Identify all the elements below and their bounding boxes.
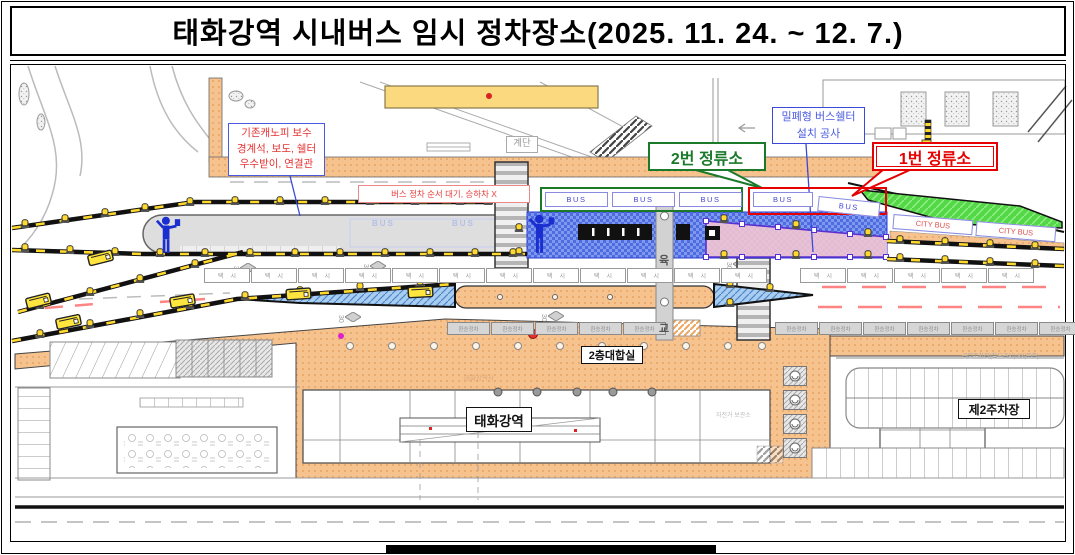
transfer-bay-row-right: 환승정차환승정차환승정차환승정차환승정차환승정차환승정차 [775,322,1075,335]
bus-bay-2: BUS [612,192,675,207]
public-parking-note: 공영주차장(철도공사) 83(북측) [962,351,1039,360]
taxi-bay-row-right: 택시택시택시택시택시 [800,268,1034,283]
canopy-note-line3: 우수받이, 연결관 [229,157,324,173]
striped-pole-icon [925,120,931,140]
transfer-bay: 환승정차 [863,322,906,335]
stop1-label: 1번 정류소 [899,145,971,169]
transfer-bay: 환승정차 [951,322,994,335]
bus-bay-1: BUS [545,192,608,207]
station-building-faint-label: 태화강역사 [464,372,494,382]
bottom-black-bar [386,545,716,553]
taxi-bay: 택시 [941,268,987,283]
stop1-bubble: 1번 정류소 [872,142,998,171]
svg-text:30: 30 [337,315,344,323]
transfer-bay: 환승정차 [1039,322,1075,335]
taxi-bay: 택시 [345,268,391,283]
station-name-label: 태화강역 [466,407,532,432]
title-underline [10,60,1066,61]
overpass-label: 육 교 [655,252,673,336]
bus-bay-4: BUS [753,192,813,207]
stop2-bubble: 2번 정류소 [648,142,766,171]
transfer-bay: 환승정차 [819,322,862,335]
page-title: 태화강역 시내버스 임시 정차장소(2025. 11. 24. ~ 12. 7.… [10,6,1066,56]
platform-bus-marking-1: BUS [372,219,395,228]
shelter-note-line2: 설치 공사 [773,126,864,143]
taxi-bay: 택시 [533,268,579,283]
taxi-bay-row-left: 택시택시택시택시택시택시택시택시택시택시택시택시 [204,268,767,283]
parking-lot2-label: 제2주차장 [958,399,1030,419]
taxi-bay: 택시 [721,268,767,283]
taxi-bay: 택시 [800,268,846,283]
taxi-bay: 택시 [204,268,250,283]
taxi-bay: 택시 [486,268,532,283]
taxi-bay: 택시 [894,268,940,283]
taxi-bay: 택시 [298,268,344,283]
transfer-bay: 환승정차 [491,322,534,335]
taxi-bay: 택시 [392,268,438,283]
canopy-note-line2: 경계석, 보도, 쉘터 [229,142,324,158]
taxi-bay: 택시 [988,268,1034,283]
shelter-construction-callout: 밀폐형 버스쉘터 설치 공사 [772,107,865,144]
bike-storage-label: 자전거 보관소 [716,410,751,419]
taxi-bay: 택시 [580,268,626,283]
shelter-note-line1: 밀폐형 버스쉘터 [773,109,864,126]
canopy-note-line1: 기존캐노피 보수 [229,126,324,142]
taxi-bay: 택시 [439,268,485,283]
svg-text:30: 30 [540,314,547,322]
transfer-bay: 환승정차 [535,322,578,335]
transfer-bay-row-left: 환승정차환승정차환승정차환승정차환승정차 [447,322,666,335]
magenta-dot [338,333,344,339]
taxi-bay: 택시 [674,268,720,283]
overpass-char-1: 육 [659,252,669,268]
transfer-bay: 환승정차 [579,322,622,335]
construction-zone [527,212,889,260]
taxi-bay: 택시 [251,268,297,283]
transfer-bay: 환승정차 [775,322,818,335]
transfer-bay: 환승정차 [907,322,950,335]
transfer-bay: 환승정차 [995,322,1038,335]
taxi-bay: 택시 [847,268,893,283]
canopy-repair-callout: 기존캐노피 보수 경계석, 보도, 쉘터 우수받이, 연결관 [228,123,325,176]
stairs-label: 계단 [506,136,538,153]
shelter-under-construction [578,224,652,240]
red-dot-marker [486,93,492,99]
bus-bay-3: BUS [679,192,742,207]
bus-wait-note: 버스 정차 순서 대기, 승하차 X [358,185,530,203]
overpass-char-2: 교 [659,320,669,336]
platform-bus-marking-2: BUS [452,219,475,228]
waiting-room-label: 2층대합실 [581,346,643,364]
transfer-bay: 환승정차 [447,322,490,335]
